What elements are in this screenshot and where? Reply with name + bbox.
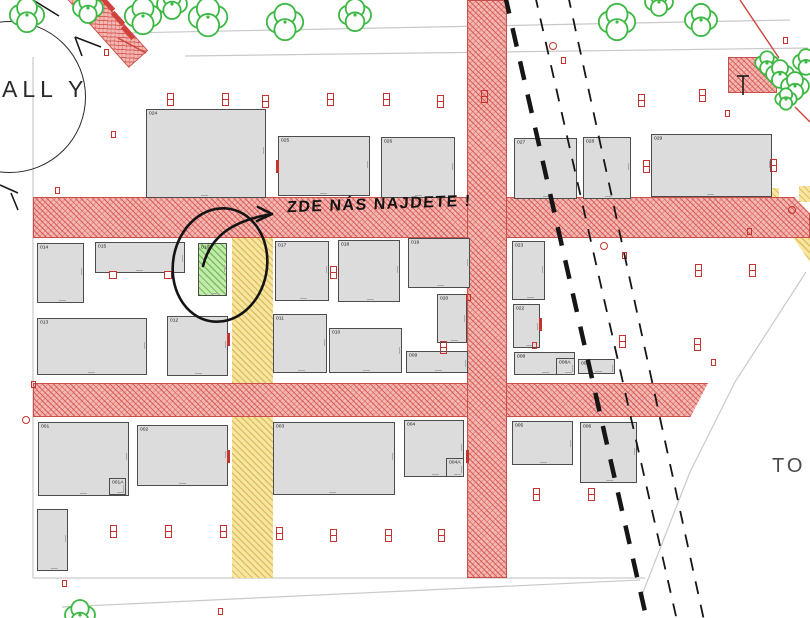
marker-icon <box>643 160 650 173</box>
plot-024: 024 <box>146 109 266 198</box>
hall-label: ALL Y <box>2 76 88 103</box>
plot-label: 025 <box>281 137 289 143</box>
marker-icon <box>749 264 756 277</box>
road-patch-topright <box>728 57 777 93</box>
plot-label: 020 <box>440 295 448 301</box>
plot-019: 019 <box>408 238 470 288</box>
marker-small-icon <box>711 359 716 366</box>
marker-tick-icon <box>227 450 230 463</box>
plot-003: 003 <box>273 422 395 495</box>
parcel-line <box>640 472 690 600</box>
parcel-line <box>62 580 640 607</box>
parcel-line <box>735 272 806 382</box>
marker-icon <box>385 529 392 542</box>
tree-icon <box>157 0 187 19</box>
marker-circle-icon <box>600 242 608 250</box>
parcel-lines-layer <box>0 0 810 618</box>
plot-002: 002 <box>137 425 228 486</box>
plot-label: 010 <box>332 329 340 335</box>
destination-label: TO I <box>772 455 810 478</box>
plot-009: 009 <box>406 351 468 373</box>
tree-icon <box>339 0 371 31</box>
marker-circle-icon <box>788 206 796 214</box>
marker-circle-icon <box>22 416 30 424</box>
plot-label: 001A <box>112 479 124 485</box>
plot-label: 003 <box>276 423 284 429</box>
tree-icon <box>775 88 796 109</box>
plot-006: 006 <box>580 422 637 483</box>
plot-028: 028 <box>583 137 631 199</box>
plot-label: 007 <box>581 360 589 366</box>
marker-icon <box>437 95 444 108</box>
marker-icon <box>619 335 626 348</box>
red-line <box>740 0 779 58</box>
plot-label: 005 <box>515 422 523 428</box>
tree-icon <box>125 0 161 34</box>
marker-icon <box>330 266 337 279</box>
marker-small-icon <box>55 187 60 194</box>
plot-label: 017 <box>278 242 286 248</box>
plot-label: 014 <box>40 244 48 250</box>
plot-label: 029 <box>654 135 662 141</box>
plot-007: 007 <box>578 359 615 374</box>
door-icon <box>164 271 172 279</box>
plot-label: 011 <box>276 315 284 321</box>
marker-small-icon <box>218 608 223 615</box>
marker-icon <box>327 93 334 106</box>
boundary-dashed-line <box>568 0 705 618</box>
plot-label: 019 <box>411 239 419 245</box>
plot-label: 002 <box>140 426 148 432</box>
plot-004A: 004A <box>446 458 464 477</box>
marker-tick-icon <box>466 450 469 463</box>
marker-small-icon <box>104 49 109 56</box>
plot-016: 016 <box>198 243 227 296</box>
marker-tick-icon <box>276 160 279 173</box>
plot-013: 013 <box>37 318 147 375</box>
tree-icon <box>189 0 228 36</box>
ink-mark <box>11 193 18 210</box>
marker-small-icon <box>62 580 67 587</box>
marker-icon <box>533 488 540 501</box>
marker-icon <box>167 93 174 106</box>
ink-mark <box>75 37 101 47</box>
plot-020: 020 <box>437 294 467 343</box>
plot-label: 027 <box>517 139 525 145</box>
plot-label: 001 <box>41 423 49 429</box>
marker-tick-icon <box>227 333 230 346</box>
marker-icon <box>588 488 595 501</box>
plot-012: 012 <box>167 316 228 376</box>
marker-small-icon <box>783 37 788 44</box>
path-wedge <box>792 236 810 262</box>
marker-small-icon <box>31 381 36 388</box>
ink-mark <box>0 185 18 193</box>
plot-label: 015 <box>98 243 106 249</box>
marker-icon <box>165 525 172 538</box>
marker-icon <box>276 527 283 540</box>
plot-011: 011 <box>273 314 327 373</box>
parcel-line <box>125 20 790 33</box>
plot-unlabeled <box>37 509 68 571</box>
marker-small-icon <box>747 228 752 235</box>
marker-icon <box>770 159 777 172</box>
plot-015: 015 <box>95 242 185 273</box>
plot-label: 023 <box>515 242 523 248</box>
marker-icon <box>694 338 701 351</box>
door-icon <box>109 271 117 279</box>
plot-label: 008A <box>559 359 571 365</box>
plot-label: 016 <box>201 244 209 250</box>
plot-label: 009 <box>409 352 417 358</box>
plot-label: 024 <box>149 110 157 116</box>
marker-small-icon <box>532 342 537 349</box>
marker-icon <box>481 90 488 103</box>
plot-005: 005 <box>512 421 573 465</box>
red-line <box>795 107 810 122</box>
path-patch-2 <box>799 186 810 202</box>
plot-label: 013 <box>40 319 48 325</box>
marker-small-icon <box>561 57 566 64</box>
tree-icon <box>267 4 303 40</box>
plot-label: 008 <box>517 353 525 359</box>
marker-icon <box>638 94 645 107</box>
marker-icon <box>110 525 117 538</box>
marker-icon <box>699 89 706 102</box>
tree-icon <box>781 72 809 100</box>
tree-icon <box>685 4 717 36</box>
plot-029: 029 <box>651 134 772 197</box>
plot-023: 023 <box>512 241 545 300</box>
ink-mark <box>75 37 82 56</box>
site-plan: ALL Y 0240250260270280290140150160170180… <box>0 0 810 618</box>
plot-label: 026 <box>384 138 392 144</box>
marker-icon <box>383 93 390 106</box>
marker-small-icon <box>622 252 627 259</box>
main-road-vertical <box>467 0 507 578</box>
tree-icon <box>645 0 673 16</box>
tree-icon <box>793 49 810 75</box>
plot-001A: 001A <box>109 478 126 495</box>
boundary-dashed-line <box>535 0 678 618</box>
marker-icon <box>695 264 702 277</box>
marker-icon <box>220 525 227 538</box>
marker-circle-icon <box>549 42 557 50</box>
plot-label: 018 <box>341 241 349 247</box>
plot-label: 006 <box>583 423 591 429</box>
overlay-layer <box>0 0 810 618</box>
plot-025: 025 <box>278 136 370 196</box>
plot-label: 028 <box>586 138 594 144</box>
plot-008A: 008A <box>556 358 575 375</box>
plot-014: 014 <box>37 243 84 303</box>
marker-icon <box>222 93 229 106</box>
plot-label: 004A <box>449 459 461 465</box>
marker-icon <box>440 341 447 354</box>
tree-icon <box>65 600 95 618</box>
plot-018: 018 <box>338 240 400 302</box>
main-road-horizontal-lower <box>33 383 708 417</box>
plot-label: 012 <box>170 317 178 323</box>
marker-small-icon <box>725 110 730 117</box>
marker-icon <box>438 529 445 542</box>
marker-icon <box>262 95 269 108</box>
plot-027: 027 <box>514 138 577 199</box>
marker-icon <box>330 529 337 542</box>
plot-label: 022 <box>516 305 524 311</box>
plot-017: 017 <box>275 241 329 301</box>
ink-mark <box>33 0 59 16</box>
marker-tick-icon <box>539 318 542 331</box>
plot-010: 010 <box>329 328 402 373</box>
marker-small-icon <box>466 294 471 301</box>
plot-026: 026 <box>381 137 455 198</box>
tree-group <box>10 0 810 618</box>
tree-icon <box>599 4 635 40</box>
marker-small-icon <box>111 131 116 138</box>
plot-label: 004 <box>407 421 415 427</box>
